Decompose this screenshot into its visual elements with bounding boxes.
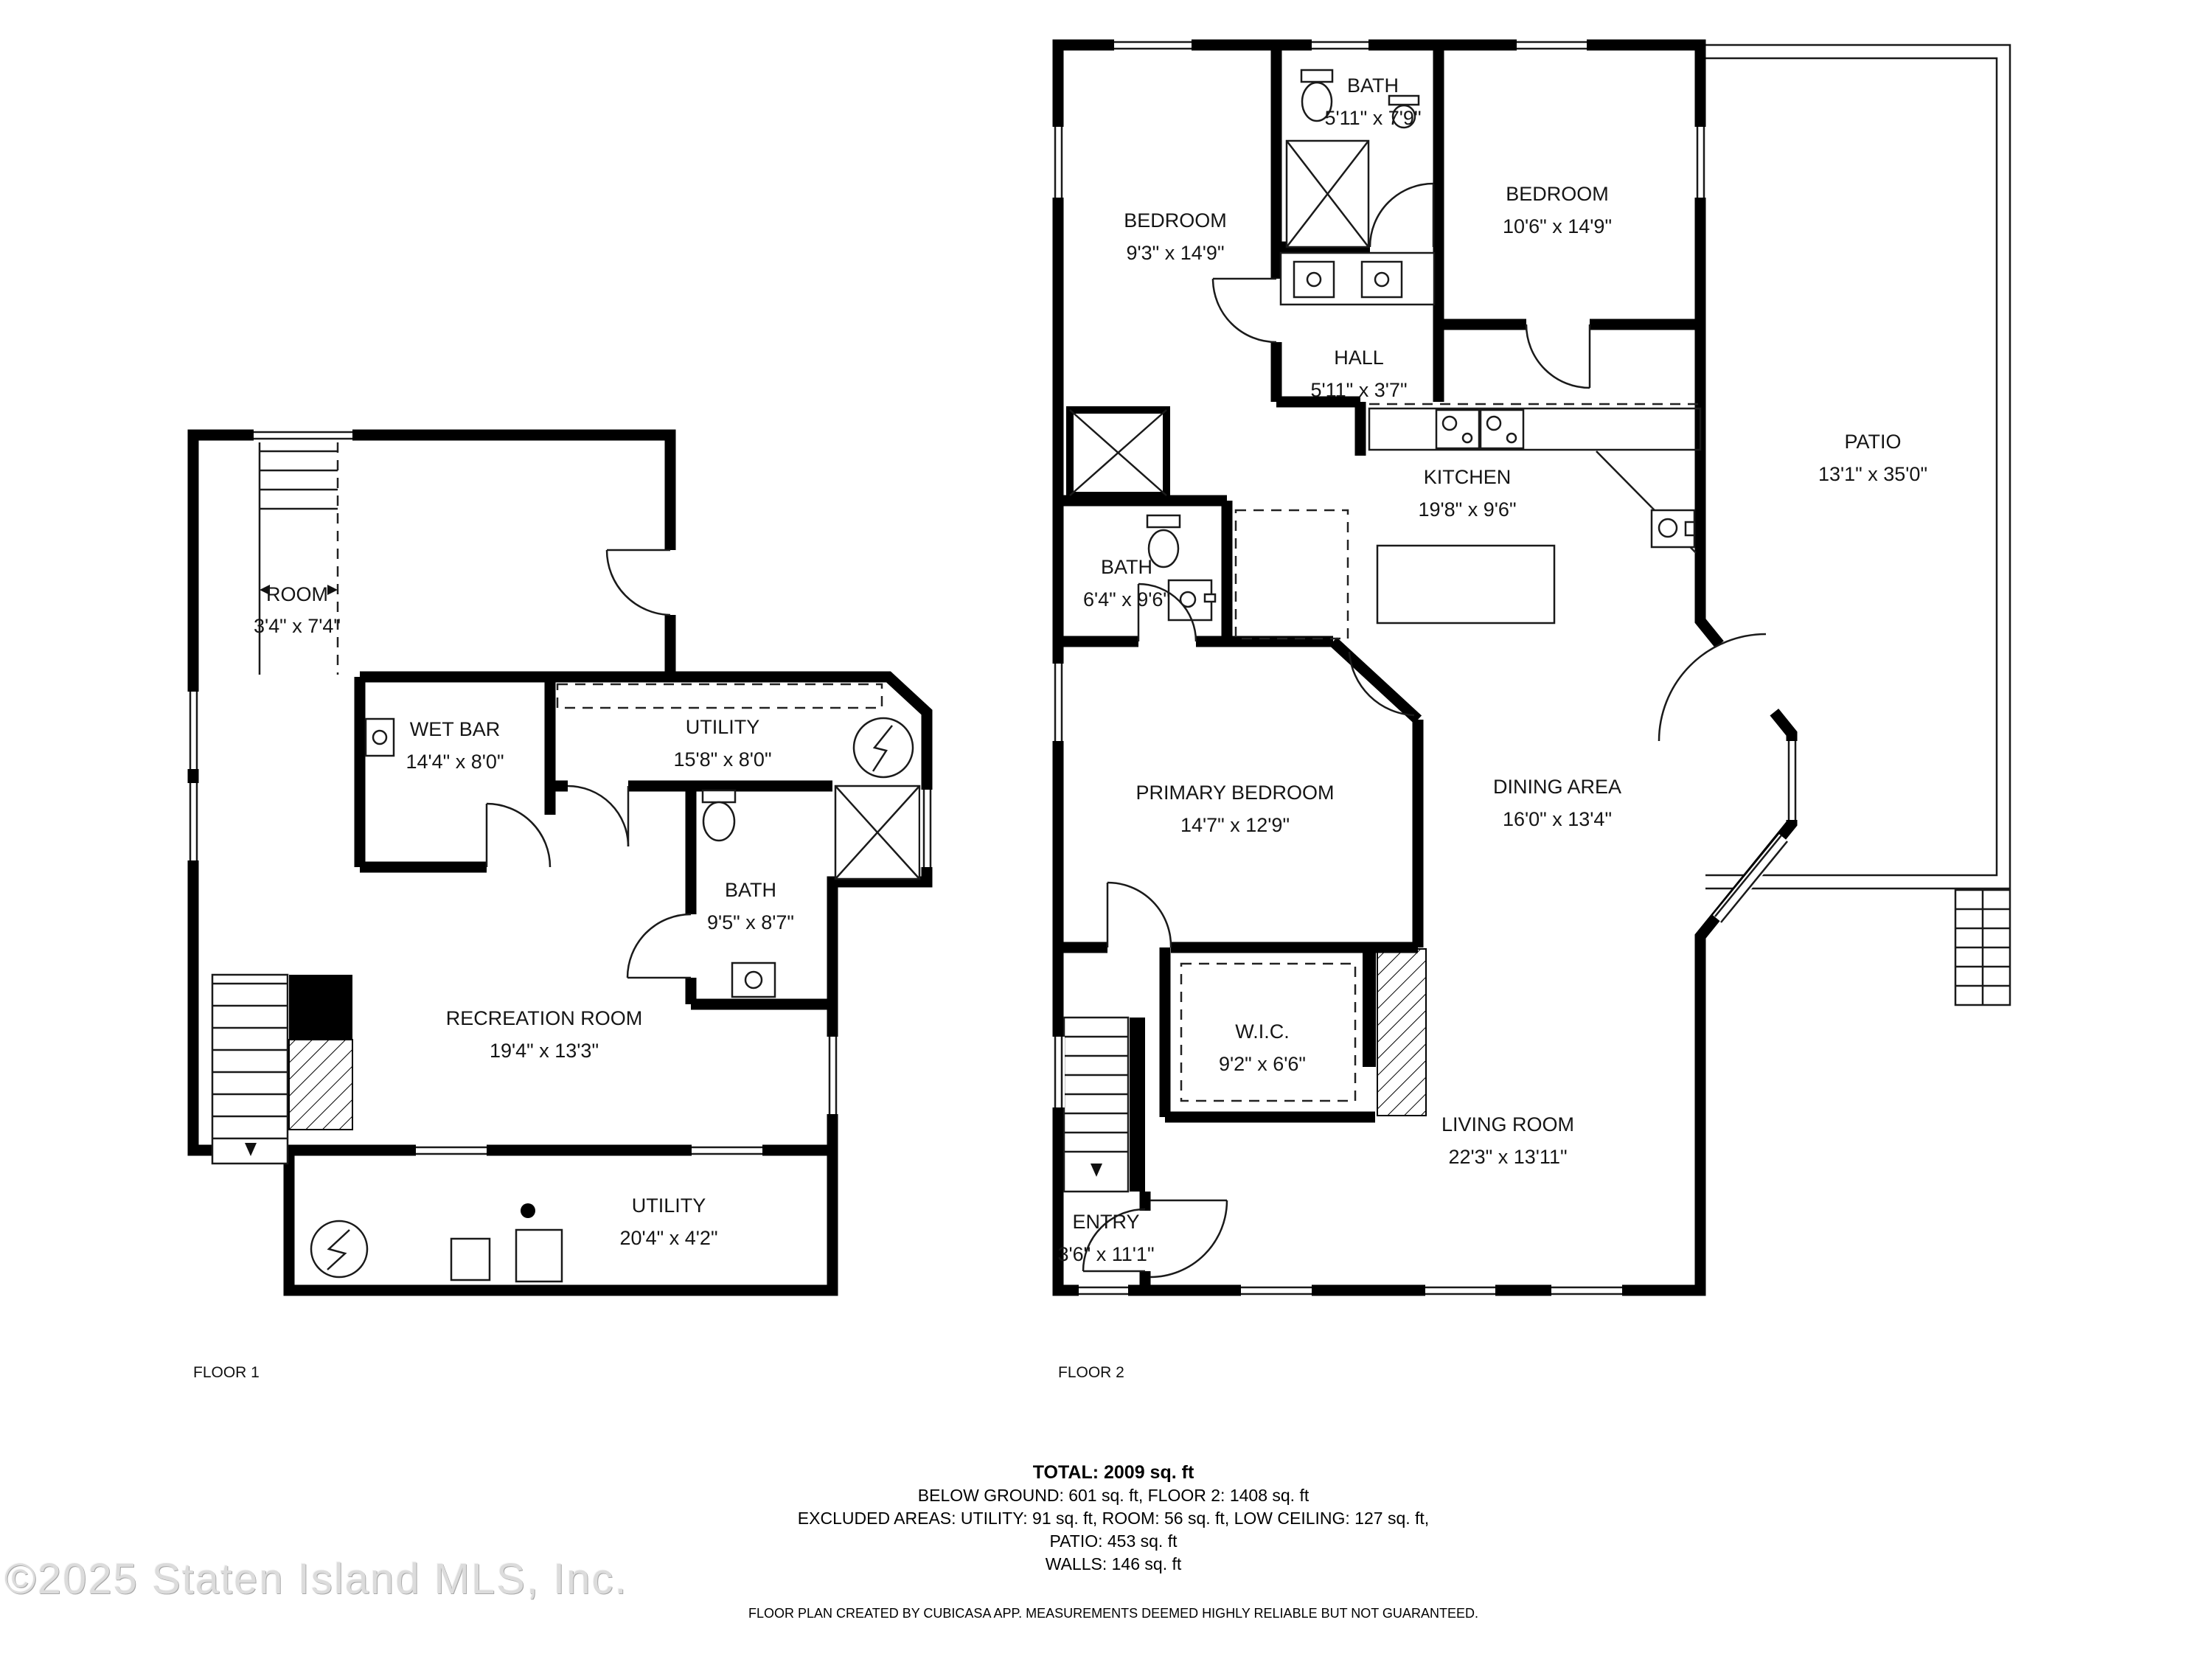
floor-plan-canvas: ROOM 3'4" x 7'4" WET BAR 14'4" x 8'0" UT…	[0, 0, 2212, 1659]
floor1-outer-walls	[193, 435, 927, 1290]
room-label-kitchen: KITCHEN 19'8" x 9'6"	[1418, 466, 1516, 521]
utility-appliance-icons	[451, 1203, 562, 1281]
room-name: LIVING ROOM	[1441, 1113, 1574, 1135]
stove-icon	[1436, 410, 1523, 448]
floor2-label: FLOOR 2	[1058, 1364, 1124, 1381]
summary-line-1: BELOW GROUND: 601 sq. ft, FLOOR 2: 1408 …	[560, 1484, 1666, 1507]
room-name: HALL	[1334, 347, 1384, 369]
room-dims: 3'6" x 11'1"	[1057, 1243, 1154, 1265]
room-name: KITCHEN	[1424, 466, 1512, 488]
room-dims: 14'4" x 8'0"	[406, 751, 504, 773]
room-label-utility-lower: UTILITY 20'4" x 4'2"	[619, 1194, 717, 1249]
room-dims: 10'6" x 14'9"	[1503, 215, 1612, 237]
closet-dashed	[1236, 510, 1348, 639]
room-label-hall: HALL 5'11" x 3'7"	[1310, 347, 1407, 401]
room-dims: 16'0" x 13'4"	[1503, 808, 1612, 830]
room-name: BEDROOM	[1124, 209, 1227, 232]
disclaimer-text: FLOOR PLAN CREATED BY CUBICASA APP. MEAS…	[560, 1606, 1666, 1621]
water-heater-icon	[311, 1221, 367, 1277]
room-label-entry: ENTRY 3'6" x 11'1"	[1057, 1211, 1154, 1265]
room-label-dining: DINING AREA 16'0" x 13'4"	[1493, 776, 1621, 830]
electrical-panel-icon	[854, 718, 913, 777]
floor2-plan: BATH 5'11" x 7'9" BEDROOM 9'3" x 14'9" B…	[1051, 38, 2010, 1381]
floor1-door-arcs	[487, 550, 691, 978]
stairwell-hatched	[1377, 949, 1426, 1116]
double-vanity-icon	[1281, 253, 1434, 305]
room-dims: 5'11" x 3'7"	[1310, 379, 1407, 401]
room-name: BATH	[1101, 556, 1152, 578]
floor1-label: FLOOR 1	[193, 1364, 260, 1381]
room-name: UTILITY	[632, 1194, 706, 1217]
shower-icon	[1287, 141, 1368, 247]
floor1-understairs-room	[260, 442, 338, 675]
room-dims: 9'2" x 6'6"	[1219, 1053, 1306, 1075]
room-label-room: ROOM 3'4" x 7'4"	[254, 583, 341, 637]
floor-plan-page: { "colors": {"wall": "#000000", "backgro…	[0, 0, 2212, 1659]
room-name: BATH	[725, 879, 776, 901]
room-dims: 19'8" x 9'6"	[1418, 498, 1516, 521]
wet-bar-sink-icon	[366, 719, 394, 756]
floor1-plan: ROOM 3'4" x 7'4" WET BAR 14'4" x 8'0" UT…	[187, 428, 933, 1381]
room-name: RECREATION ROOM	[446, 1007, 643, 1029]
room-dims: 15'8" x 8'0"	[673, 748, 771, 771]
dim-arrow-right	[327, 585, 338, 595]
room-label-utility-upper: UTILITY 15'8" x 8'0"	[673, 716, 771, 771]
door-gap	[664, 550, 676, 615]
room-name: BATH	[1347, 74, 1399, 97]
room-name: W.I.C.	[1235, 1020, 1290, 1043]
room-dims: 20'4" x 4'2"	[619, 1227, 717, 1249]
room-label-living: LIVING ROOM 22'3" x 13'11"	[1441, 1113, 1574, 1168]
room-dims: 9'5" x 8'7"	[707, 911, 794, 933]
room-dims: 13'1" x 35'0"	[1818, 463, 1927, 485]
room-label-recreation: RECREATION ROOM 19'4" x 13'3"	[446, 1007, 643, 1062]
room-name: ENTRY	[1072, 1211, 1139, 1233]
mls-watermark: ©2025 Staten Island MLS, Inc.	[4, 1554, 628, 1604]
room-dims: 6'4" x 9'6"	[1083, 588, 1170, 611]
room-dims: 22'3" x 13'11"	[1448, 1146, 1567, 1168]
storage-x-box	[835, 786, 919, 879]
room-dims: 14'7" x 12'9"	[1180, 814, 1290, 836]
room-dims: 19'4" x 13'3"	[490, 1040, 599, 1062]
floor1-stairs	[212, 975, 352, 1164]
room-label-bedroom-left: BEDROOM 9'3" x 14'9"	[1124, 209, 1227, 264]
kitchen-counter	[1369, 404, 1700, 557]
room-label-wet-bar: WET BAR 14'4" x 8'0"	[406, 718, 504, 773]
patio-stairs	[1955, 890, 2010, 1005]
room-label-wic: W.I.C. 9'2" x 6'6"	[1219, 1020, 1306, 1075]
room-name: BEDROOM	[1506, 183, 1609, 205]
total-area: TOTAL: 2009 sq. ft	[560, 1461, 1666, 1484]
sink-icon	[732, 963, 775, 997]
kitchen-sink-icon	[1652, 510, 1694, 547]
area-summary: TOTAL: 2009 sq. ft BELOW GROUND: 601 sq.…	[560, 1461, 1666, 1576]
summary-line-4: WALLS: 146 sq. ft	[560, 1553, 1666, 1576]
room-dims: 9'3" x 14'9"	[1126, 242, 1224, 264]
room-name: PRIMARY BEDROOM	[1135, 782, 1334, 804]
summary-line-3: PATIO: 453 sq. ft	[560, 1530, 1666, 1553]
room-name: WET BAR	[410, 718, 501, 740]
vanity-sink-icon	[1169, 580, 1215, 620]
cabinet-dashed	[557, 684, 882, 708]
room-label-primary-bedroom: PRIMARY BEDROOM 14'7" x 12'9"	[1135, 782, 1334, 836]
room-label-bedroom-right: BEDROOM 10'6" x 14'9"	[1503, 183, 1612, 237]
toilet-icon	[703, 790, 735, 841]
room-label-bath1: BATH 9'5" x 8'7"	[707, 879, 794, 933]
room-label-patio: PATIO 13'1" x 35'0"	[1818, 431, 1927, 485]
bay-windows	[1715, 644, 1798, 922]
closet-x-box	[1070, 410, 1166, 495]
kitchen-island	[1377, 546, 1554, 623]
room-name: PATIO	[1844, 431, 1901, 453]
entry-stairs	[1064, 1018, 1145, 1192]
room-name: DINING AREA	[1493, 776, 1621, 798]
summary-line-2: EXCLUDED AREAS: UTILITY: 91 sq. ft, ROOM…	[560, 1507, 1666, 1530]
room-dims: 5'11" x 7'9"	[1324, 107, 1421, 129]
room-name: ROOM	[266, 583, 328, 605]
room-dims: 3'4" x 7'4"	[254, 615, 341, 637]
room-name: UTILITY	[686, 716, 760, 738]
